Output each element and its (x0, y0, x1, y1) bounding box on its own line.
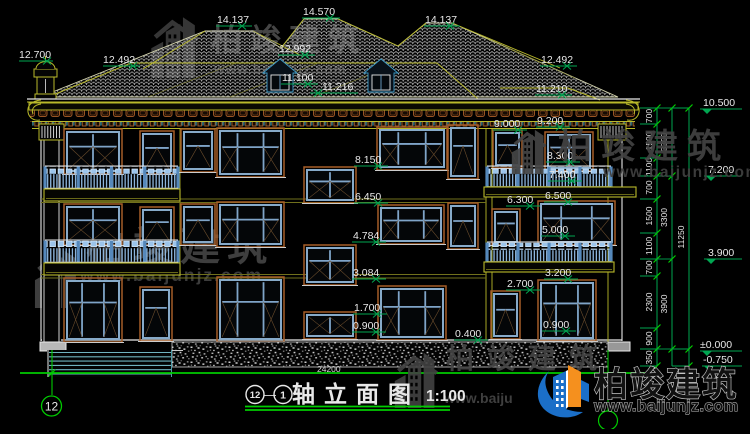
svg-text:1.700: 1.700 (354, 302, 380, 314)
svg-text:0.400: 0.400 (455, 328, 481, 340)
svg-text:3.900: 3.900 (708, 247, 734, 259)
svg-text:12: 12 (250, 390, 261, 401)
svg-text:3.084: 3.084 (353, 267, 379, 279)
svg-text:5.000: 5.000 (542, 224, 568, 236)
svg-text:11.210: 11.210 (536, 83, 567, 95)
svg-text:1100: 1100 (644, 237, 654, 256)
svg-text:6.500: 6.500 (545, 190, 571, 202)
svg-text:11.100: 11.100 (282, 72, 313, 84)
svg-text:-0.750: -0.750 (703, 354, 733, 366)
svg-text:14.570: 14.570 (303, 6, 335, 18)
svg-text:10.500: 10.500 (703, 97, 735, 109)
svg-text:柏竣建筑: 柏竣建筑 (558, 127, 730, 166)
svg-text:900: 900 (644, 331, 654, 345)
svg-text:700: 700 (644, 180, 654, 194)
svg-text:9.200: 9.200 (537, 115, 563, 127)
svg-text:700: 700 (644, 109, 654, 123)
svg-text:3300: 3300 (659, 208, 669, 227)
svg-text:1500: 1500 (644, 206, 654, 225)
svg-text:4.784: 4.784 (353, 230, 379, 242)
svg-text:0.900: 0.900 (353, 320, 379, 332)
svg-text:www.baijunjz.com: www.baijunjz.com (602, 164, 750, 181)
svg-text:2300: 2300 (644, 292, 654, 311)
svg-text:2.700: 2.700 (507, 278, 533, 290)
svg-text:6.450: 6.450 (355, 191, 381, 203)
svg-text:12.700: 12.700 (19, 49, 51, 61)
svg-text:24200: 24200 (317, 364, 341, 374)
svg-text:1:100: 1:100 (426, 388, 466, 405)
svg-text:0.900: 0.900 (543, 319, 569, 331)
svg-text:±0.000: ±0.000 (700, 339, 732, 351)
svg-text:柏竣建筑: 柏竣建筑 (446, 342, 610, 374)
svg-text:www.baijunjz.com: www.baijunjz.com (593, 398, 739, 415)
svg-text:1: 1 (280, 390, 286, 402)
svg-text:350: 350 (644, 350, 654, 364)
svg-text:700: 700 (644, 260, 654, 274)
svg-text:轴立面图: 轴立面图 (292, 381, 420, 407)
svg-text:12: 12 (45, 400, 59, 414)
svg-text:3.200: 3.200 (545, 267, 571, 279)
svg-text:11.216: 11.216 (322, 81, 353, 93)
svg-text:8.150: 8.150 (355, 154, 381, 166)
svg-text:6.300: 6.300 (507, 194, 533, 206)
svg-text:3900: 3900 (659, 294, 669, 313)
svg-text:11250: 11250 (676, 225, 686, 248)
svg-text:7.400: 7.400 (549, 169, 575, 181)
